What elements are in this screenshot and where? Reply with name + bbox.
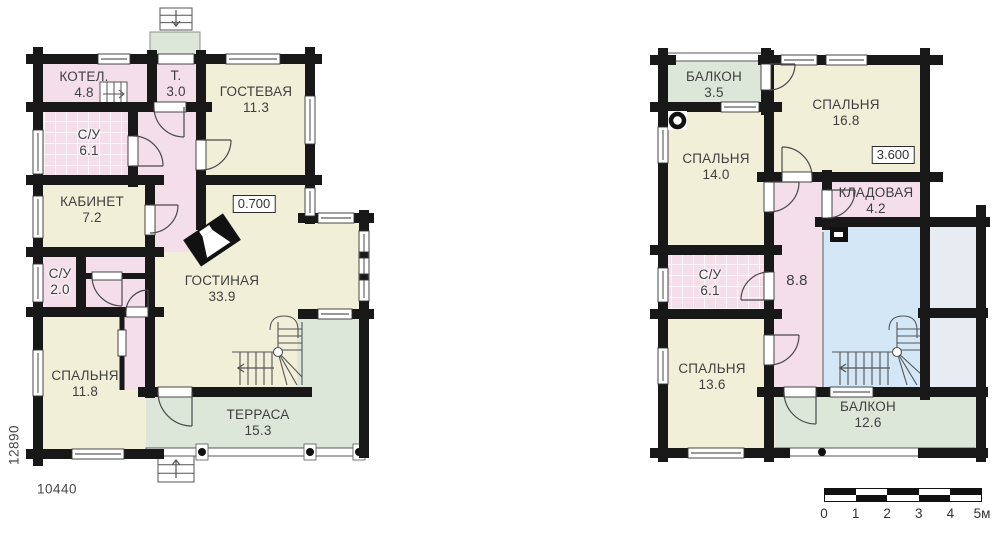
scale-tick-3: 3 bbox=[915, 506, 923, 521]
level-mark-floor2: 3.600 bbox=[872, 146, 915, 164]
scale-bar: 0 1 2 3 4 5м bbox=[824, 488, 982, 524]
dimension-horizontal: 10440 bbox=[37, 482, 77, 497]
room-label-bedroom2: СПАЛЬНЯ 16.8 bbox=[812, 97, 879, 129]
scale-tick-0: 0 bbox=[820, 506, 828, 521]
room-label-guestroom: ГОСТЕВАЯ 11.3 bbox=[220, 84, 293, 116]
room-label-balcony-small: БАЛКОН 3.5 bbox=[686, 69, 742, 101]
room-label-tambour: Т. 3.0 bbox=[166, 68, 185, 100]
room-label-terrace: ТЕРРАСА 15.3 bbox=[227, 407, 290, 439]
room-label-livingroom: ГОСТИНАЯ 33.9 bbox=[185, 273, 259, 305]
scale-tick-5: 5м bbox=[974, 506, 991, 521]
scale-tick-2: 2 bbox=[883, 506, 891, 521]
vent-pipe-icon bbox=[668, 111, 687, 130]
scale-tick-1: 1 bbox=[852, 506, 860, 521]
room-label-bedroom1: СПАЛЬНЯ 11.8 bbox=[51, 368, 118, 400]
scale-bar-labels: 0 1 2 3 4 5м bbox=[824, 506, 982, 524]
entry-steps bbox=[160, 8, 192, 30]
scale-tick-4: 4 bbox=[947, 506, 955, 521]
room-label-bathroom3: С/У 6.1 bbox=[699, 267, 722, 299]
room-label-storage: КЛАДОВАЯ 4.2 bbox=[839, 185, 914, 217]
floorplan-drawing bbox=[0, 0, 1000, 534]
terrace-steps bbox=[158, 456, 194, 482]
chimney-icon bbox=[830, 227, 848, 242]
room-label-boiler: КОТЕЛ. 4.8 bbox=[59, 69, 108, 101]
floorplan-sheet: КОТЕЛ. 4.8 Т. 3.0 ГОСТЕВАЯ 11.3 С/У 6.1 … bbox=[0, 0, 1000, 534]
room-label-bathroom1: С/У 6.1 bbox=[78, 127, 101, 159]
room-label-hall: 8.8 bbox=[786, 273, 807, 289]
room-label-balcony-large: БАЛКОН 12.6 bbox=[840, 399, 896, 431]
room-label-bathroom2: С/У 2.0 bbox=[49, 266, 72, 298]
room-label-bedroom4: СПАЛЬНЯ 13.6 bbox=[678, 361, 745, 393]
dimension-vertical: 12890 bbox=[7, 425, 22, 465]
room-label-bedroom3: СПАЛЬНЯ 14.0 bbox=[682, 151, 749, 183]
level-mark-floor1: 0.700 bbox=[233, 195, 276, 213]
room-label-office: КАБИНЕТ 7.2 bbox=[60, 194, 124, 226]
scale-bar-rows bbox=[824, 488, 982, 502]
